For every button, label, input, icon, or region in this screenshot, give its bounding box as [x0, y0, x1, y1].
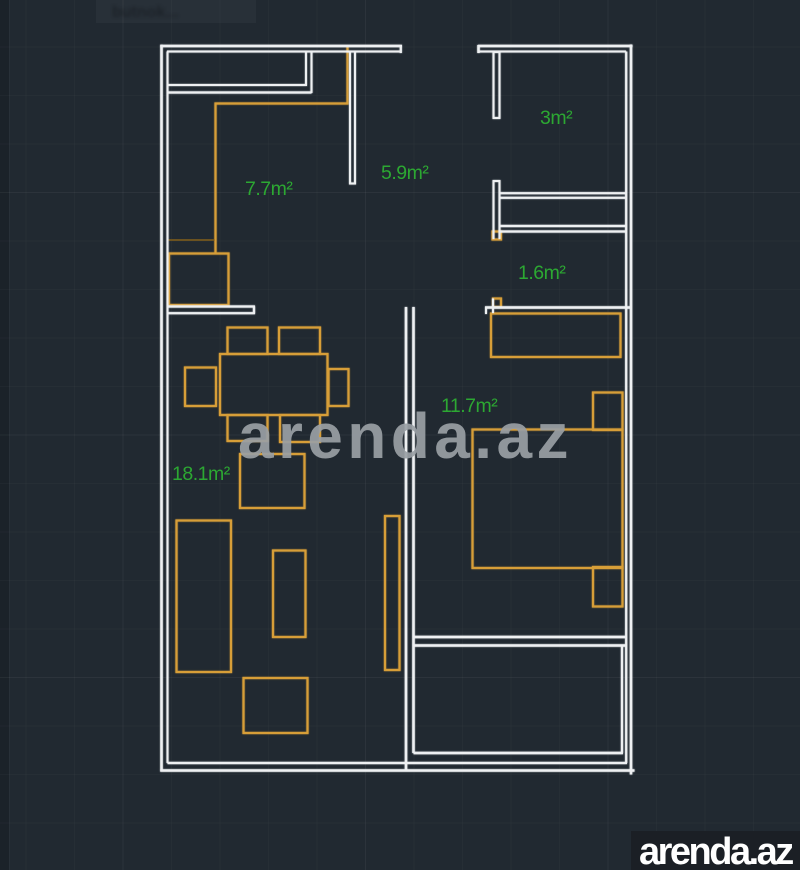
svg-text:1.6m²: 1.6m² — [518, 262, 566, 284]
svg-text:arenda.az: arenda.az — [639, 831, 793, 870]
svg-text:7.7m²: 7.7m² — [245, 178, 293, 200]
svg-text:butnok...: butnok... — [112, 4, 179, 21]
svg-text:18.1m²: 18.1m² — [172, 463, 231, 485]
svg-text:5.9m²: 5.9m² — [381, 162, 429, 184]
svg-text:3m²: 3m² — [540, 107, 573, 129]
svg-text:arenda.az: arenda.az — [238, 400, 573, 472]
